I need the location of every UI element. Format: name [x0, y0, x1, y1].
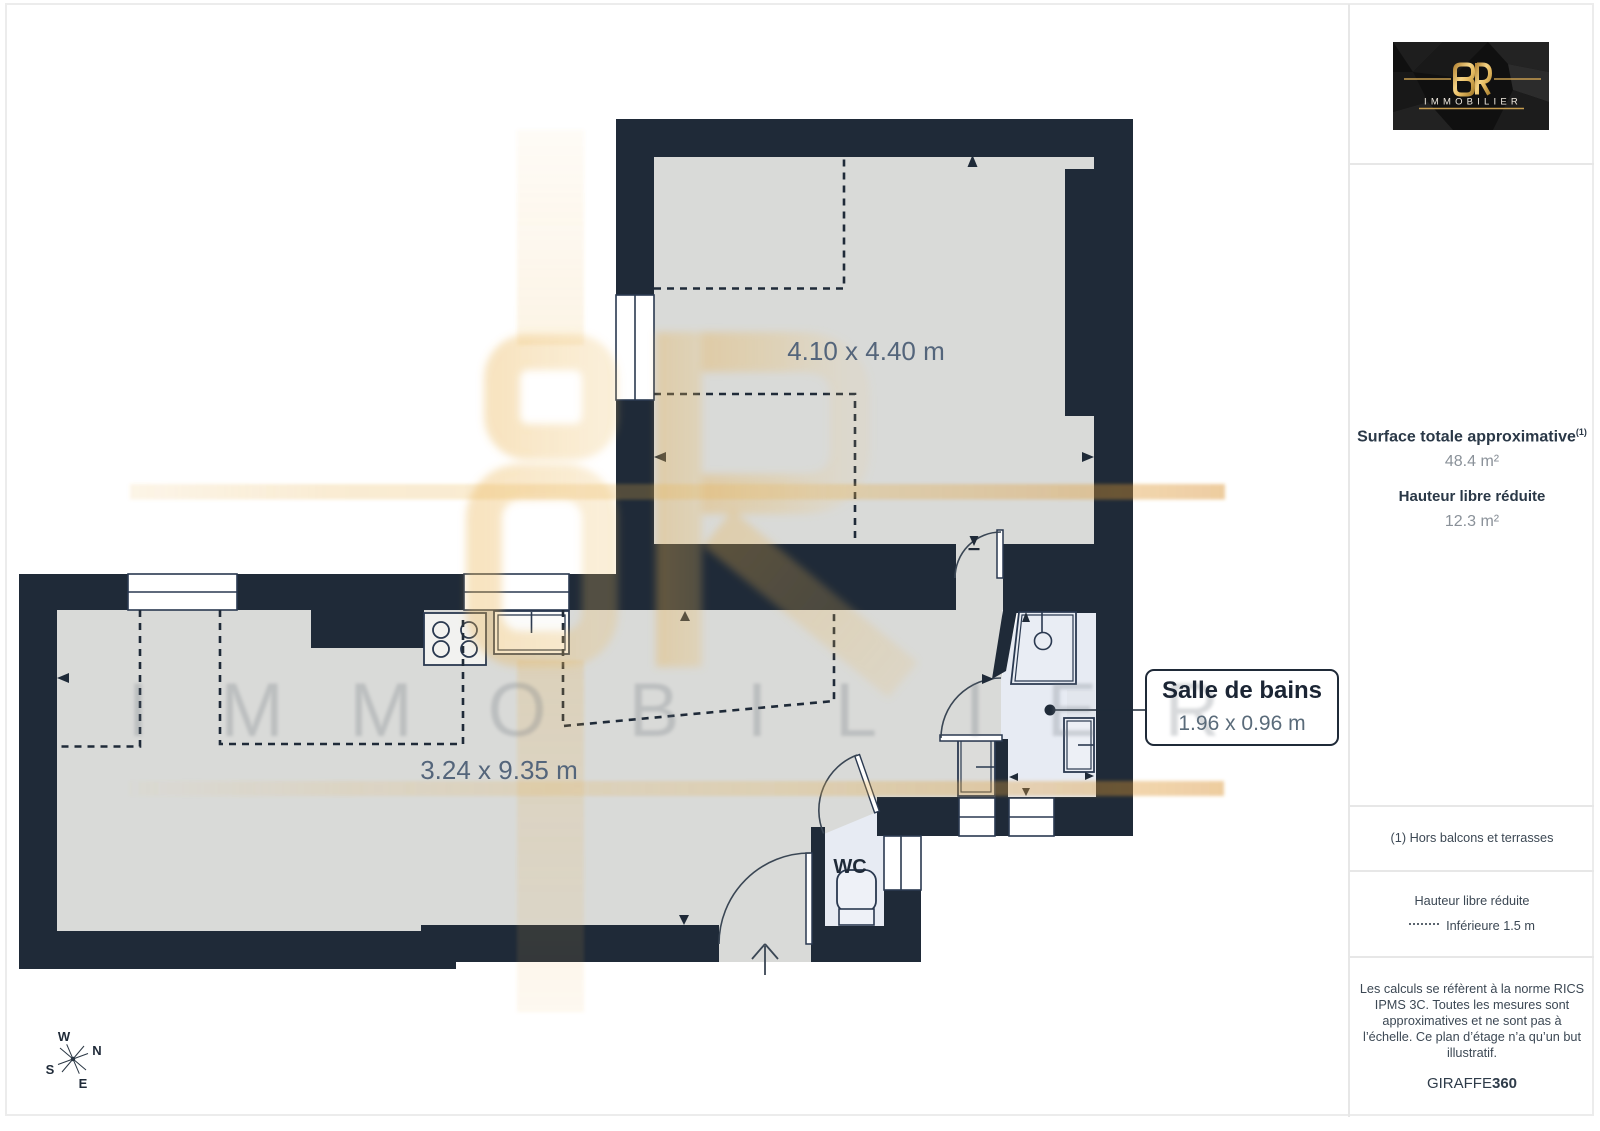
svg-text:N: N: [92, 1043, 101, 1058]
svg-text:M: M: [220, 668, 283, 753]
svg-text:E: E: [79, 1076, 88, 1091]
svg-text:I: I: [127, 668, 148, 753]
svg-text:Salle de bains: Salle de bains: [1162, 677, 1322, 704]
svg-text:O: O: [487, 668, 546, 753]
svg-text:IMMOBILIER: IMMOBILIER: [1424, 97, 1522, 108]
svg-text:I: I: [964, 668, 985, 753]
svg-text:I: I: [746, 668, 767, 753]
svg-text:1.96 x 0.96 m: 1.96 x 0.96 m: [1178, 712, 1305, 735]
svg-text:B: B: [629, 668, 680, 753]
svg-text:M: M: [349, 668, 412, 753]
svg-text:S: S: [46, 1062, 55, 1077]
svg-text:4.10 x 4.40 m: 4.10 x 4.40 m: [787, 336, 945, 366]
svg-text:WC: WC: [833, 856, 866, 878]
svg-text:E: E: [1047, 668, 1098, 753]
svg-text:3.24 x 9.35 m: 3.24 x 9.35 m: [420, 755, 578, 785]
svg-text:W: W: [58, 1029, 71, 1044]
svg-text:L: L: [835, 668, 877, 753]
